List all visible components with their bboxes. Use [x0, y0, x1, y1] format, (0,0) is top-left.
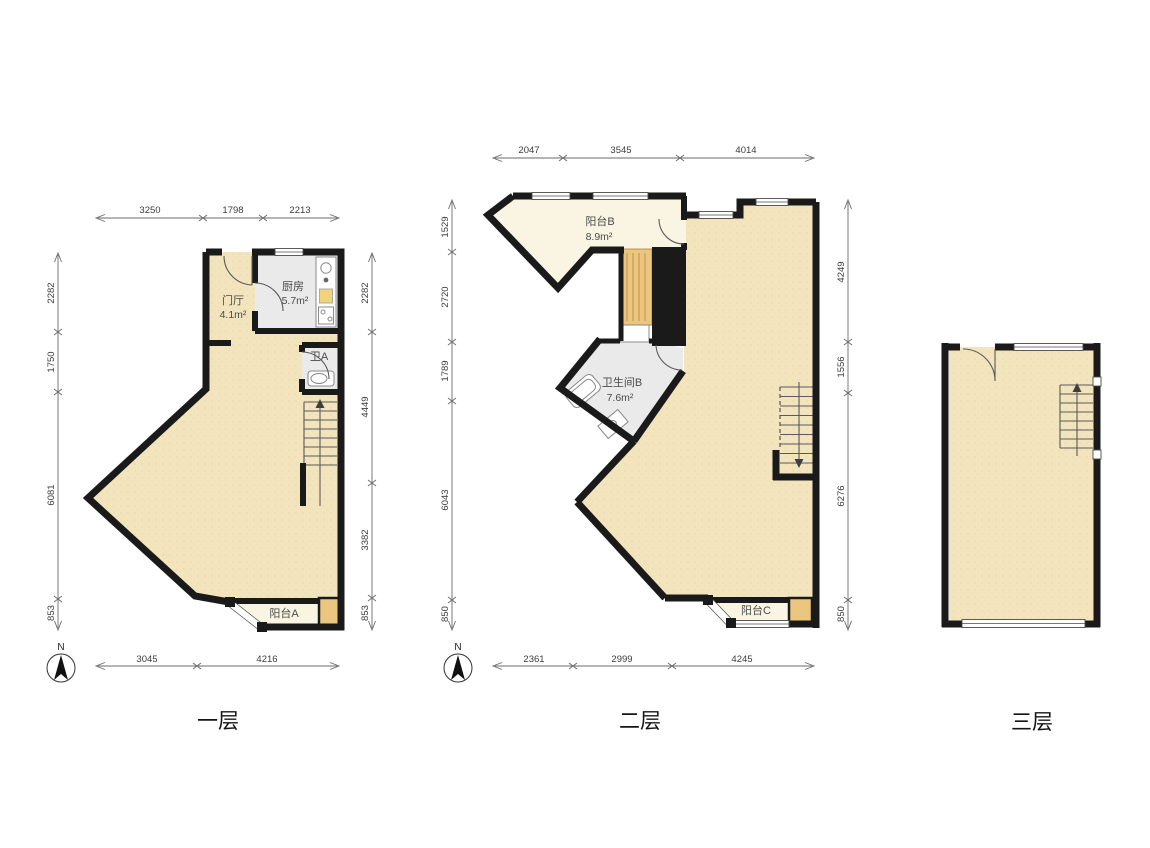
dim-label: 3545: [610, 145, 631, 156]
dim-label: 2047: [518, 145, 539, 156]
wardrobe-icon: [621, 249, 652, 325]
dim-label: 1798: [222, 205, 243, 216]
dim-label: 1529: [440, 216, 451, 237]
room-label-bathB: 卫生间B: [602, 375, 642, 389]
floor3-main-floor: [949, 347, 1094, 623]
dim-label: 3045: [136, 654, 157, 665]
dim-label: 2213: [289, 205, 310, 216]
duct-wall: [652, 247, 686, 346]
floor1-plan: 门厅 4.1m² 厨房 5.7m² 卫A 阳台A 3250 1798 2213 …: [46, 205, 376, 733]
floor3-bottom-window: [962, 620, 1085, 628]
floor2-dim-right: 4249 1556 6276 850: [836, 200, 852, 630]
dim-label: 4245: [731, 654, 752, 665]
floor3-top-window: [1014, 344, 1083, 351]
dim-label: 850: [440, 606, 451, 622]
north-label: N: [454, 642, 461, 653]
dim-label: 4249: [836, 261, 847, 282]
room-label-bathA: 卫A: [310, 351, 329, 363]
dim-label: 3250: [139, 205, 160, 216]
toilet-icon: [308, 371, 334, 386]
floor2-plan: 阳台B 8.9m² 卫生间B 7.6m² 阳台C 2047 3545 4014 …: [440, 145, 852, 733]
dim-label: 4216: [256, 654, 277, 665]
dim-label: 4014: [735, 145, 756, 156]
floor1-dim-top: 3250 1798 2213: [96, 205, 339, 222]
floor2-dim-top: 2047 3545 4014: [493, 145, 814, 162]
north-arrow-icon: N: [47, 642, 75, 682]
floor3-right-window: [1093, 450, 1101, 459]
floor2-dim-left: 1529 2720 1789 6043 850: [440, 200, 456, 630]
dim-label: 1556: [836, 356, 847, 377]
dim-label: 2999: [611, 654, 632, 665]
room-label-kitchen: 厨房: [282, 280, 304, 293]
room-label-hall: 门厅: [222, 293, 244, 307]
room-area-hall: 4.1m²: [220, 309, 247, 321]
dim-label: 853: [46, 605, 57, 621]
room-area-balconyB: 8.9m²: [586, 231, 613, 243]
floor1-dim-right: 2282 4449 3382 853: [360, 253, 376, 630]
floor1-balcony-cabinet: [319, 598, 339, 625]
floorplan-page: 门厅 4.1m² 厨房 5.7m² 卫A 阳台A 3250 1798 2213 …: [0, 0, 1150, 848]
floor1-dim-bottom: 3045 4216: [96, 654, 339, 670]
dim-label: 6081: [46, 484, 57, 505]
north-label: N: [57, 642, 64, 653]
dim-label: 853: [360, 605, 371, 621]
room-area-kitchen: 5.7m²: [282, 295, 309, 307]
north-arrow-icon: N: [444, 642, 472, 682]
dim-label: 2361: [523, 654, 544, 665]
washer-icon: [620, 325, 649, 342]
kitchen-counter-icon: [316, 257, 336, 327]
floor3-right-window: [1093, 377, 1101, 386]
room-label-balconyB: 阳台B: [585, 214, 614, 228]
dim-label: 4449: [360, 396, 371, 417]
room-area-bathB: 7.6m²: [607, 392, 634, 404]
dim-label: 3382: [360, 529, 371, 550]
floor3-plan: 三层: [942, 343, 1101, 734]
floor-caption-3: 三层: [1011, 711, 1053, 734]
room-label-balconyC: 阳台C: [741, 603, 771, 617]
dim-label: 1789: [440, 360, 451, 381]
dim-label: 2282: [360, 282, 371, 303]
dim-label: 1750: [46, 351, 57, 372]
floor2-dim-bottom: 2361 2999 4245: [493, 654, 814, 670]
kitchen-window: [275, 249, 303, 256]
dim-label: 2282: [46, 282, 57, 303]
dim-label: 6276: [836, 485, 847, 506]
dim-label: 6043: [440, 489, 451, 510]
room-label-balconyA: 阳台A: [269, 606, 299, 620]
floor-caption-1: 一层: [197, 710, 239, 733]
floorplan-canvas: 门厅 4.1m² 厨房 5.7m² 卫A 阳台A 3250 1798 2213 …: [0, 0, 1150, 848]
floor1-dim-left: 2282 1750 6081 853: [46, 253, 62, 630]
dim-label: 850: [836, 606, 847, 622]
floor-caption-2: 二层: [619, 710, 661, 733]
dim-label: 2720: [440, 286, 451, 307]
